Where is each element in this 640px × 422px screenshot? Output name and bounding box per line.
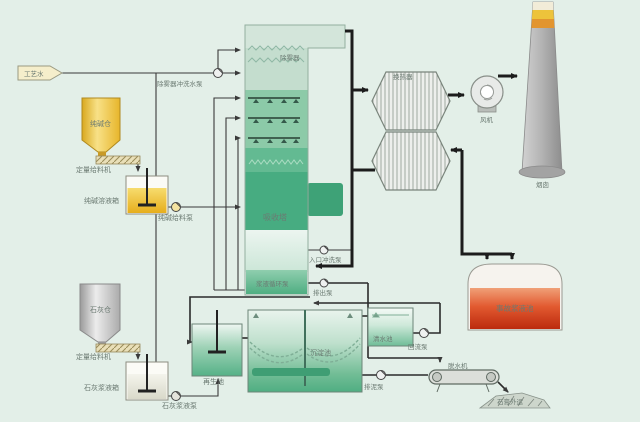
sludge-pump-label: 排泥泵 xyxy=(364,382,384,391)
emergency-tank-label: 事故浆液池 xyxy=(496,303,534,313)
absorber-tower xyxy=(245,25,345,295)
gypsum-label: 石膏外运 xyxy=(497,397,524,406)
absorber-label: 吸收塔 xyxy=(263,212,287,222)
lime-tank-label: 石灰浆液箱 xyxy=(84,383,119,392)
demister-wash-pump-icon xyxy=(214,69,223,78)
chimney xyxy=(519,2,566,178)
chimney-base xyxy=(519,166,565,178)
soda-silo-label: 纯碱仓 xyxy=(90,119,111,128)
circulation-pump-label: 浆液循环泵 xyxy=(256,279,289,288)
soda-pump-icon xyxy=(172,203,181,212)
lime-feeder-label: 定量给料机 xyxy=(76,352,111,361)
emergency-tank xyxy=(468,264,562,330)
heat-exchanger-label: 换热器 xyxy=(393,72,413,81)
lime-pump-label: 石灰浆液泵 xyxy=(162,401,197,410)
demister-label: 除雾器 xyxy=(280,53,300,62)
fan xyxy=(471,76,503,112)
discharge-pump-icon xyxy=(320,279,328,287)
dewaterer xyxy=(429,370,499,392)
absorber-side-bulge xyxy=(307,183,343,216)
clear-water-tank-label: 清水池 xyxy=(373,334,393,343)
return-pump-icon xyxy=(420,329,429,338)
chimney-label: 烟囱 xyxy=(536,180,549,189)
sludge-pump-icon xyxy=(377,371,386,380)
dewaterer-label: 脱水机 xyxy=(448,361,468,370)
lime-pump-icon xyxy=(172,392,181,401)
lime-feeder-screw xyxy=(96,344,140,352)
fan-label: 风机 xyxy=(480,115,494,124)
sludge-collector xyxy=(252,368,330,376)
soda-tank-label: 纯碱溶液箱 xyxy=(84,196,119,205)
regeneration-tank-label: 再生池 xyxy=(203,377,224,386)
heat-exchanger xyxy=(372,72,450,190)
settling-tank xyxy=(248,310,362,392)
discharge-pump-label: 排出泵 xyxy=(313,288,333,297)
inlet-flush-pump-icon xyxy=(320,246,328,254)
inlet-flush-pump-label: 入口冲洗泵 xyxy=(309,255,342,264)
soda-feeder-label: 定量给料机 xyxy=(76,165,111,174)
settling-tank-label: 沉淀池 xyxy=(310,348,331,357)
diagram-canvas: 工艺水 除雾器冲洗水泵 纯碱仓 定量给料机 纯碱溶液箱 纯碱给料泵 石灰仓 定量… xyxy=(0,0,640,422)
regeneration-tank xyxy=(192,310,242,376)
demister-wash-pump-label: 除雾器冲洗水泵 xyxy=(157,79,203,88)
process-water-label: 工艺水 xyxy=(24,69,44,78)
lime-silo-label: 石灰仓 xyxy=(90,305,111,314)
process-flow-diagram: 工艺水 除雾器冲洗水泵 纯碱仓 定量给料机 纯碱溶液箱 纯碱给料泵 石灰仓 定量… xyxy=(0,0,640,422)
lime-system xyxy=(80,284,168,400)
soda-pump-label: 纯碱给料泵 xyxy=(158,213,193,222)
return-pump-label: 回流泵 xyxy=(408,342,428,351)
soda-feeder-screw xyxy=(96,156,140,164)
